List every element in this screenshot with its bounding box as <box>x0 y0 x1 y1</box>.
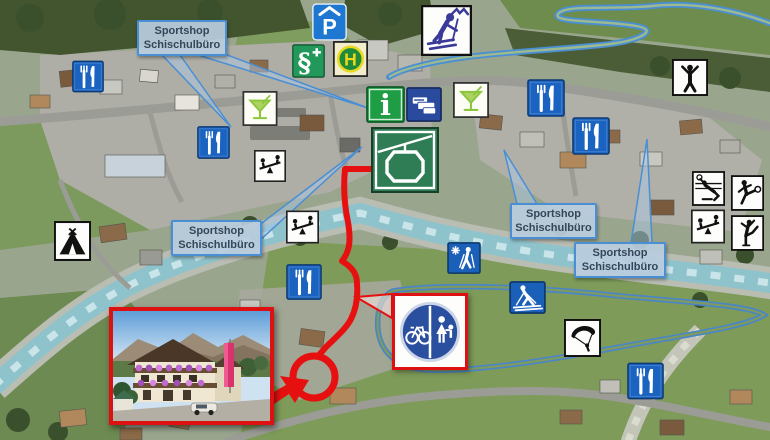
resort-map: P § H i <box>0 0 770 440</box>
ice-skating-icon <box>731 215 764 251</box>
cocktail-icon <box>242 91 278 126</box>
cross-country-ski-icon <box>509 281 546 314</box>
svg-text:§: § <box>297 47 311 78</box>
restaurant-icon <box>72 57 104 96</box>
bus-stop-icon: H <box>333 41 368 77</box>
winter-hiking-icon <box>447 242 481 274</box>
gondola-icon <box>371 127 439 193</box>
sportshop-label: SportshopSchischulbüro <box>510 203 597 239</box>
covered-parking-icon: P <box>312 3 347 41</box>
soccer-icon <box>731 175 764 211</box>
paragliding-icon <box>564 319 601 357</box>
campsite-icon <box>54 221 91 261</box>
sportshop-label: SportshopSchischulbüro <box>171 220 262 256</box>
playground-icon <box>691 209 725 244</box>
playground-icon <box>286 210 319 244</box>
restaurant-icon <box>286 262 322 302</box>
info-icon: i <box>366 86 405 123</box>
restaurant-icon <box>627 362 664 400</box>
cocktail-icon <box>452 82 490 118</box>
svg-text:H: H <box>344 50 357 70</box>
svg-text:i: i <box>380 88 391 122</box>
sportshop-label: SportshopSchischulbüro <box>137 20 227 56</box>
doctor-icon: § <box>292 44 325 78</box>
volleyball-icon <box>692 171 725 206</box>
ski-icon <box>421 5 472 56</box>
ticket-office-icon <box>406 87 442 122</box>
restaurant-icon <box>572 117 610 155</box>
playground-icon <box>254 149 286 183</box>
restaurant-icon <box>197 124 230 161</box>
restaurant-icon <box>527 79 565 117</box>
bike-pedestrian-sign <box>392 293 468 370</box>
hotel-photo-inset <box>109 307 274 425</box>
svg-text:P: P <box>322 15 337 40</box>
gymnastics-icon <box>672 59 708 96</box>
sportshop-label: SportshopSchischulbüro <box>574 242 666 278</box>
